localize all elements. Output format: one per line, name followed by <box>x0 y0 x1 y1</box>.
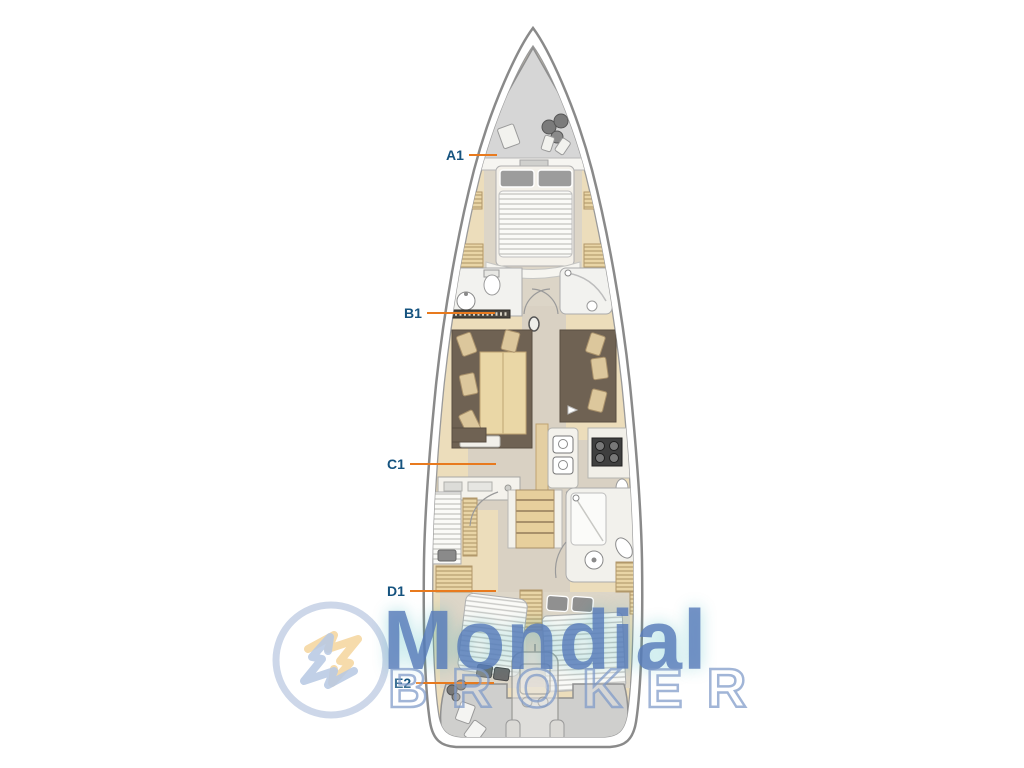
pillow-icon <box>571 596 593 612</box>
faucet-icon <box>464 292 468 296</box>
callout-label: D1 <box>387 582 405 600</box>
pillow-icon <box>500 170 534 187</box>
pillow-icon <box>538 170 572 187</box>
sink-icon <box>553 457 573 474</box>
burner-icon <box>610 442 619 451</box>
galley-cabinet <box>452 428 486 442</box>
callout-label: E2 <box>394 674 411 692</box>
callout-label: A1 <box>446 146 464 164</box>
toilet-flush <box>592 558 597 563</box>
stair-rail <box>554 490 562 548</box>
leader-line <box>469 154 497 156</box>
burner-icon <box>596 442 605 451</box>
chart-table-item <box>444 482 462 491</box>
companionway-stairs <box>516 490 554 548</box>
leader-line <box>410 463 496 465</box>
leader-line <box>427 312 495 314</box>
callout-a1: A1 <box>446 146 497 164</box>
sink-icon <box>553 436 573 453</box>
burner-icon <box>610 454 619 463</box>
bunk-ladder <box>463 498 477 556</box>
callout-d1: D1 <box>387 582 496 600</box>
burner-icon <box>596 454 605 463</box>
chart-table-item <box>468 482 492 491</box>
callout-e2: E2 <box>394 674 494 692</box>
fender-icon <box>554 114 568 128</box>
stove-icon <box>592 438 622 466</box>
forward-berth-mattress <box>499 191 572 257</box>
stair-rail <box>508 490 516 548</box>
pillow-icon <box>546 595 568 611</box>
mast-icon <box>529 317 539 331</box>
callout-b1: B1 <box>404 304 495 322</box>
callout-label: C1 <box>387 455 405 473</box>
shower-head-icon <box>573 495 579 501</box>
cushion-icon <box>591 357 609 380</box>
gear-icon <box>452 693 460 701</box>
callout-label: B1 <box>404 304 422 322</box>
drain-icon <box>587 301 597 311</box>
yacht-deck-plan-page: A1 B1 C1 D1 E2 Mondial BROKER <box>0 0 1024 768</box>
callout-c1: C1 <box>387 455 496 473</box>
leader-line <box>410 590 496 592</box>
pillow-icon <box>493 667 510 681</box>
toilet-icon <box>484 275 500 295</box>
leader-line <box>416 682 494 684</box>
yacht-deck-plan-drawing <box>0 0 1024 768</box>
pillow-icon <box>438 550 456 561</box>
shower-head-icon <box>565 270 571 276</box>
